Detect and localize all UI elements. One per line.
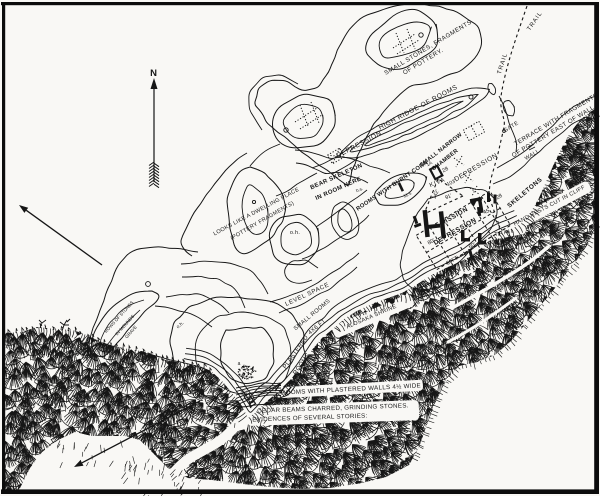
svg-text:8½: 8½ bbox=[241, 389, 249, 396]
svg-text:o.h.: o.h. bbox=[290, 230, 301, 236]
svg-text:a: a bbox=[238, 361, 241, 367]
svg-text:N: N bbox=[150, 68, 158, 79]
